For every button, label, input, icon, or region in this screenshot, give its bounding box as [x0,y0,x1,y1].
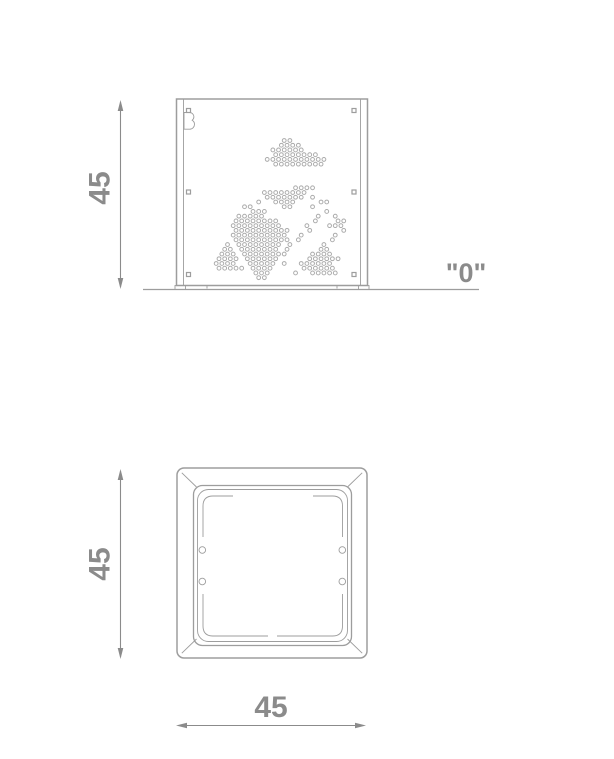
perforation-hole [226,243,230,247]
perforation-hole [243,233,247,237]
perforation-hole [319,257,323,261]
perforation-hole [282,233,286,237]
perforation-hole [277,224,281,228]
perforation-hole [279,191,283,195]
perforation-hole [217,266,221,270]
perforation-hole [296,191,300,195]
perforation-hole [285,162,289,166]
perforation-hole [279,143,283,147]
perforation-hole [277,158,281,162]
perforation-hole [316,252,320,256]
perforation-hole [285,247,289,251]
plan-outer-frame [177,468,367,658]
perforation-hole [257,247,261,251]
perforation-hole [294,195,298,199]
perforation-hole [291,153,295,157]
perforation-hole [223,247,227,251]
perforation-hole [231,224,235,228]
perforation-hole [245,257,249,261]
perforation-hole [296,162,300,166]
perforation-hole [311,205,315,209]
perforation-hole [325,247,329,251]
perforation-hole [248,252,252,256]
perforation-hole [313,257,317,261]
perforation-hole [254,252,258,256]
perforation-hole [274,162,278,166]
perforation-hole [305,186,309,190]
perforation-hole [228,257,232,261]
perforation-hole [260,243,264,247]
perforation-hole [268,257,272,261]
perforation-hole [333,271,337,275]
perforation-hole [285,191,289,195]
plan-inner-frame [194,486,352,646]
perforation-hole [328,224,332,228]
perforation-hole [237,243,241,247]
perforation-hole [234,228,238,232]
perforation-hole [262,228,266,232]
perforation-hole [288,205,292,209]
perforation-hole [282,205,286,209]
perforation-hole [260,262,264,266]
perforation-hole [228,247,232,251]
perforation-hole [313,153,317,157]
perforation-hole [296,153,300,157]
perforation-hole [277,252,281,256]
perforation-hole [251,219,255,223]
perforation-hole [251,228,255,232]
perforation-hole [296,143,300,147]
perforation-hole [299,158,303,162]
perforation-hole [268,266,272,270]
screw-hole [199,578,206,585]
technical-drawing: 45 "0" 45 45 [0,0,614,759]
perforation-hole [282,252,286,256]
perforation-hole [265,233,269,237]
perforation-hole [331,257,335,261]
perforation-hole [257,228,261,232]
perforation-hole [328,262,332,266]
perforation-hole [271,252,275,256]
perforation-hole [319,200,323,204]
perforation-hole [291,162,295,166]
perforation-hole [285,238,289,242]
perforation-hole [260,214,264,218]
perforation-hole [302,153,306,157]
perforation-hole [234,257,238,261]
perforation-hole [328,271,332,275]
perforation-hole [271,195,275,199]
perforation-hole [257,219,261,223]
fastener-square [352,273,356,277]
perforation-hole [257,276,261,280]
perforation-hole [237,214,241,218]
perforation-hole [316,158,320,162]
perforation-hole [240,247,244,251]
perforation-hole [294,271,298,275]
perforation-hole [245,247,249,251]
fastener-square [187,273,191,277]
perforation-hole [234,266,238,270]
perforation-hole [262,219,266,223]
perforation-hole [237,233,241,237]
perforation-hole [313,266,317,270]
perforation-hole [240,238,244,242]
perforation-hole [282,262,286,266]
perforation-hole [308,266,312,270]
perforation-hole [268,191,272,195]
perforation-hole [262,238,266,242]
perforation-hole [308,162,312,166]
perforation-hole [305,262,309,266]
seam-line-top-right [313,496,343,537]
fastener-square [187,109,191,113]
perforation-hole [308,228,312,232]
perforation-hole [254,233,258,237]
perforation-hole [305,224,309,228]
perforation-hole [277,233,281,237]
perforation-hole [260,233,264,237]
screw-hole [339,578,346,585]
perforation-hole [245,219,249,223]
perforation-hole [308,257,312,261]
perforation-hole [294,148,298,152]
perforation-hole [333,224,337,228]
perforation-hole [231,262,235,266]
perforation-hole [325,200,329,204]
perforation-hole [257,266,261,270]
perforation-hole [223,266,227,270]
plan-inner-edge-line [198,490,348,642]
perforation-hole [268,238,272,242]
perforation-hole [254,224,258,228]
perforation-hole [248,243,252,247]
perforation-hole [299,233,303,237]
perforation-hole [288,148,292,152]
perforation-hole [271,233,275,237]
perforation-hole [325,266,329,270]
perforation-hole [234,219,238,223]
perforation-hole [243,224,247,228]
corner-miter-line [182,473,197,487]
perforation-hole [294,158,298,162]
seam-line-bottom-left [203,594,268,636]
perforation-hole [265,271,269,275]
perforation-hole [243,214,247,218]
perforation-hole [288,195,292,199]
perforation-hole [331,238,335,242]
perforation-hole [265,224,269,228]
arrow-left-icon [176,723,187,729]
front-height-dimension: 45 [84,100,124,289]
perforation-hole [316,214,320,218]
perforation-hole [220,262,224,266]
perforation-hole [319,162,323,166]
perforation-hole [271,148,275,152]
perforation-hole [271,158,275,162]
perforation-hole [285,228,289,232]
perforation-hole [296,238,300,242]
perforation-hole [274,200,278,204]
perforation-hole [279,200,283,204]
perforation-hole [240,219,244,223]
perforation-hole [339,224,343,228]
perforation-hole [262,191,266,195]
arrow-down-icon [118,648,124,659]
perforation-hole [231,233,235,237]
corner-miter-line [348,473,363,487]
perforation-hole [274,238,278,242]
perforation-hole [265,262,269,266]
perforation-hole [311,195,315,199]
perforation-hole [313,162,317,166]
perforation-hole [262,210,266,214]
perforation-hole [285,153,289,157]
perforation-hole [325,257,329,261]
perforation-hole [265,252,269,256]
perforation-hole [279,162,283,166]
perforation-hole [248,214,252,218]
perforation-hole [254,271,258,275]
perforation-hole [277,148,281,152]
perforation-hole [274,247,278,251]
perforation-hole [322,262,326,266]
perforation-hole [331,266,335,270]
perforation-hole [251,247,255,251]
perforation-hole [260,271,264,275]
perforation-hole [342,219,346,223]
perforation-hole [302,162,306,166]
perforation-hole [299,262,303,266]
seam-line-top-left [203,496,233,537]
perforation-hole [262,276,266,280]
perforation-hole [288,139,292,143]
perforation-hole [262,266,266,270]
perforation-hole [333,233,337,237]
perforation-hole [294,186,298,190]
perforation-hole [291,143,295,147]
plan-width-dimension-label: 45 [254,691,287,724]
perforation-hole [311,158,315,162]
front-height-dimension-label: 45 [84,171,117,204]
perforation-hole [285,200,289,204]
perforation-hole [274,228,278,232]
perforation-hole [237,224,241,228]
fastener-square [187,190,191,194]
plan-width-dimension: 45 [176,691,366,728]
perforation-hole [245,238,249,242]
perforation-hole [220,252,224,256]
perforation-hole [274,219,278,223]
perforation-hole [285,143,289,147]
perforation-hole [288,158,292,162]
brand-logo-icon [184,113,195,130]
perforation-hole [282,139,286,143]
perforation-hole [302,191,306,195]
seam-line-bottom-right [277,594,343,636]
perforation-hole [248,205,252,209]
front-elevation-view [143,99,479,290]
arrow-up-icon [118,100,124,111]
perforation-hole [217,257,221,261]
ground-level-label: "0" [446,258,487,288]
perforation-hole [299,186,303,190]
perforation-hole [260,224,264,228]
perforation-hole [333,214,337,218]
fastener-square [352,190,356,194]
screw-hole [339,547,346,554]
screw-hole [199,547,206,554]
perforation-hole [277,195,281,199]
technical-drawing-sheet: 45 "0" 45 45 [0,0,614,759]
plan-height-dimension-label: 45 [84,547,117,580]
perforation-hole [262,257,266,261]
perforation-hole [257,210,261,214]
perforation-hole [316,262,320,266]
perforation-hole [265,158,269,162]
fastener-square [352,109,356,113]
perforation-hole [265,243,269,247]
arrow-down-icon [118,278,124,289]
perforation-hole [240,266,244,270]
perforation-hole [245,228,249,232]
perforation-hole [322,158,326,162]
perforation-hole [243,205,247,209]
perforation-hole [257,238,261,242]
perforation-hole [274,191,278,195]
perforation-hole [243,243,247,247]
perforation-hole [251,266,255,270]
perforation-hole [226,262,230,266]
perforation-hole [322,243,326,247]
perforation-hole [231,252,235,256]
perforation-hole [257,257,261,261]
perforation-hole [277,243,281,247]
plan-height-dimension: 45 [84,469,124,659]
perforation-hole [234,238,238,242]
perforation-hole [322,271,326,275]
perforation-hole [240,228,244,232]
perforation-hole [299,195,303,199]
perforation-hole [262,247,266,251]
perforation-hole [248,224,252,228]
perforation-hole [260,252,264,256]
perforation-hole [313,219,317,223]
perforation-hole [265,195,269,199]
perforation-hole [316,271,320,275]
perforation-hole [268,219,272,223]
perforation-hole [268,228,272,232]
perforation-hole [319,247,323,251]
perforation-hole [291,200,295,204]
arrow-up-icon [118,469,124,480]
perforation-hole [251,210,255,214]
perforation-hole [228,266,232,270]
perforation-hole [325,210,329,214]
perforation-hole [223,257,227,261]
perforation-hole [279,228,283,232]
perforation-hole [268,247,272,251]
perforation-hole [279,153,283,157]
perforation-hole [288,243,292,247]
perforation-hole [322,252,326,256]
perforation-hole [308,153,312,157]
perforation-hole [311,186,315,190]
perforation-hole [299,148,303,152]
perforation-hole [302,266,306,270]
perforation-hole [311,271,315,275]
perforation-hole [271,243,275,247]
perforation-hole [248,233,252,237]
perforation-pattern [214,139,345,280]
perforation-hole [274,153,278,157]
perforation-hole [291,191,295,195]
perforation-hole [254,262,258,266]
perforation-hole [243,252,247,256]
perforation-hole [251,238,255,242]
perforation-hole [226,252,230,256]
perforation-hole [248,262,252,266]
perforation-hole [311,252,315,256]
perforation-hole [328,252,332,256]
perforation-hole [336,219,340,223]
perforation-hole [282,195,286,199]
plan-view [177,468,367,658]
perforation-hole [271,262,275,266]
perforation-hole [254,214,258,218]
arrow-right-icon [355,723,366,729]
perforation-hole [274,257,278,261]
perforation-hole [271,224,275,228]
perforation-hole [282,148,286,152]
perforation-hole [336,257,340,261]
perforation-hole [251,257,255,261]
perforation-hole [311,262,315,266]
perforation-hole [279,238,283,242]
perforation-hole [342,228,346,232]
perforation-hole [257,200,261,204]
perforation-hole [305,158,309,162]
perforation-hole [254,243,258,247]
perforation-hole [282,158,286,162]
perforation-hole [214,262,218,266]
perforation-hole [319,266,323,270]
